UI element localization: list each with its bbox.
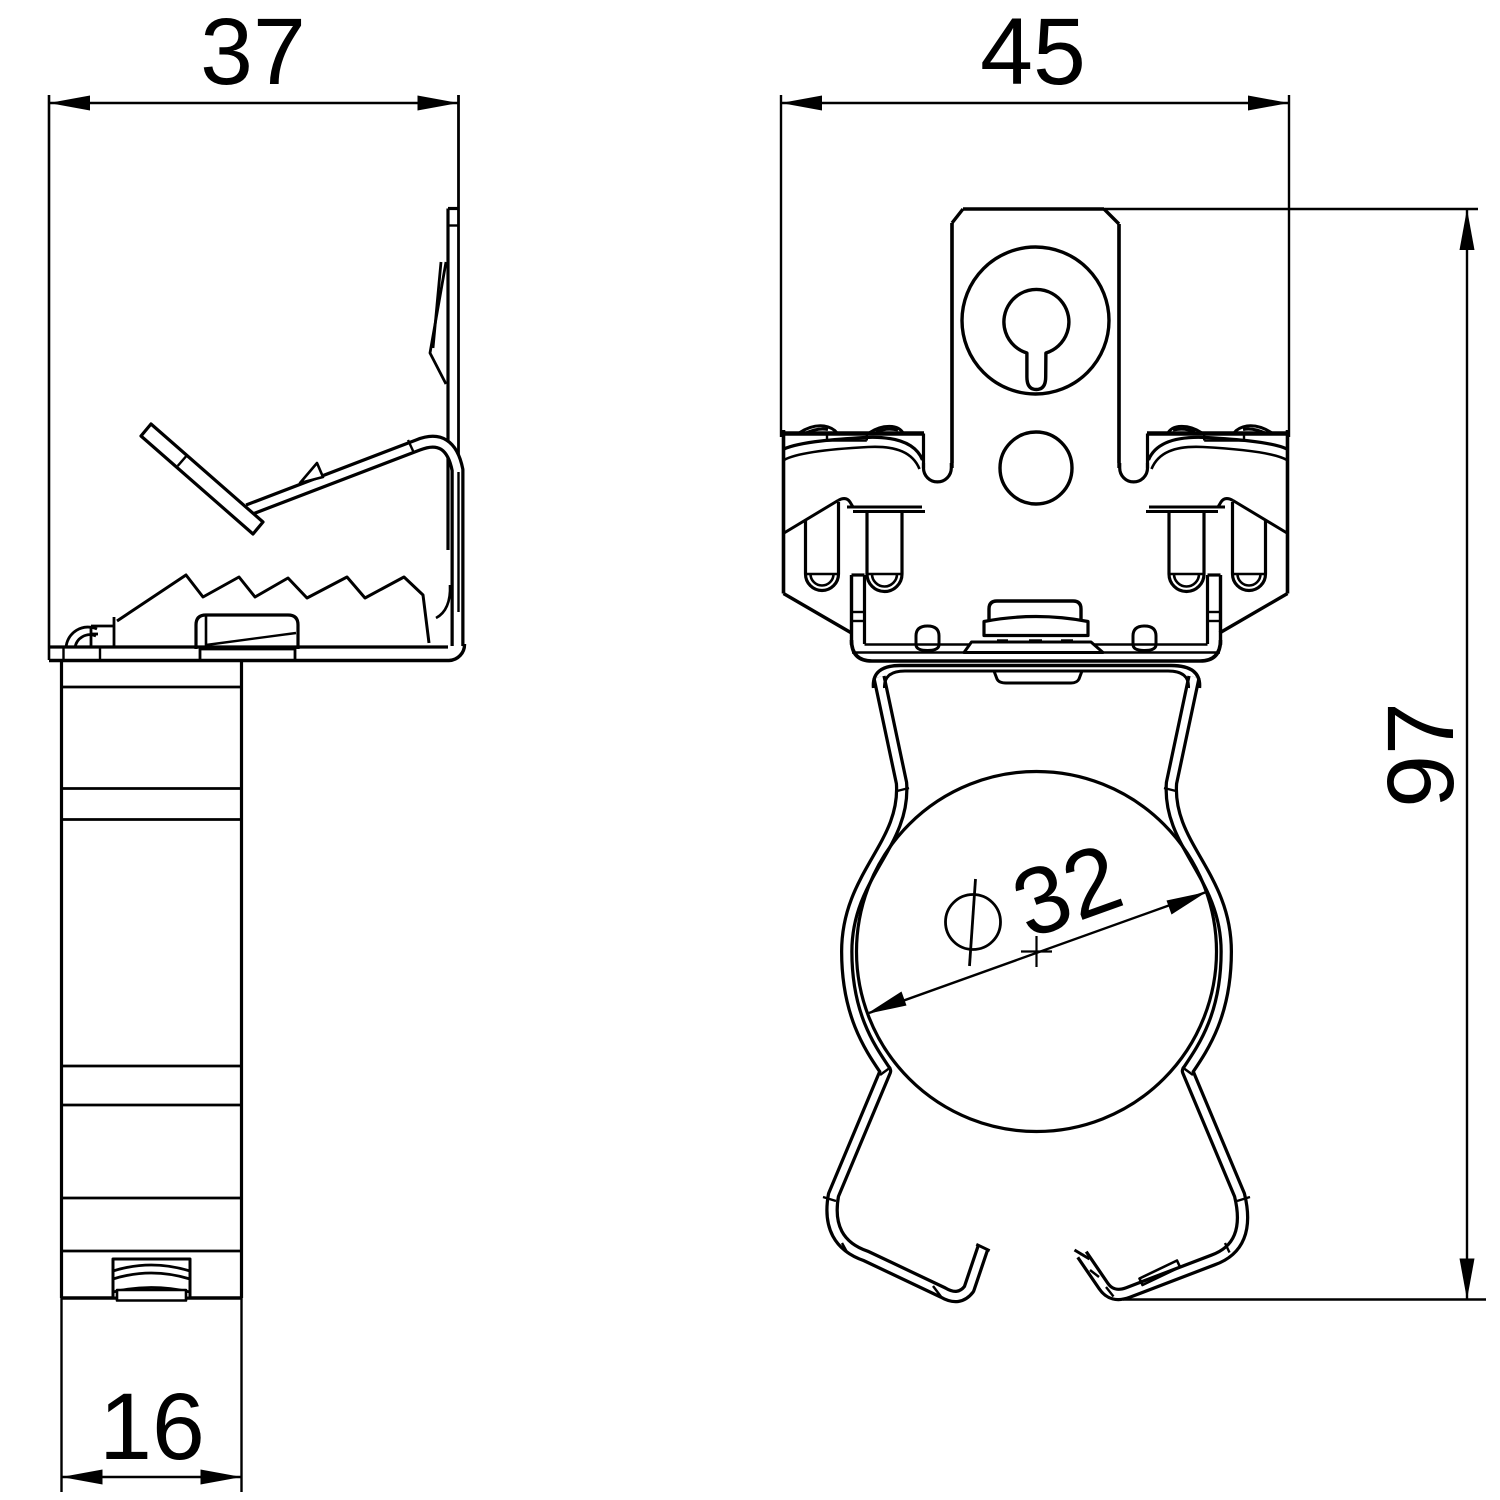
svg-text:37: 37 [200,0,306,105]
svg-text:97: 97 [1368,702,1474,808]
svg-text:45: 45 [980,0,1086,105]
svg-text:16: 16 [99,1374,205,1480]
